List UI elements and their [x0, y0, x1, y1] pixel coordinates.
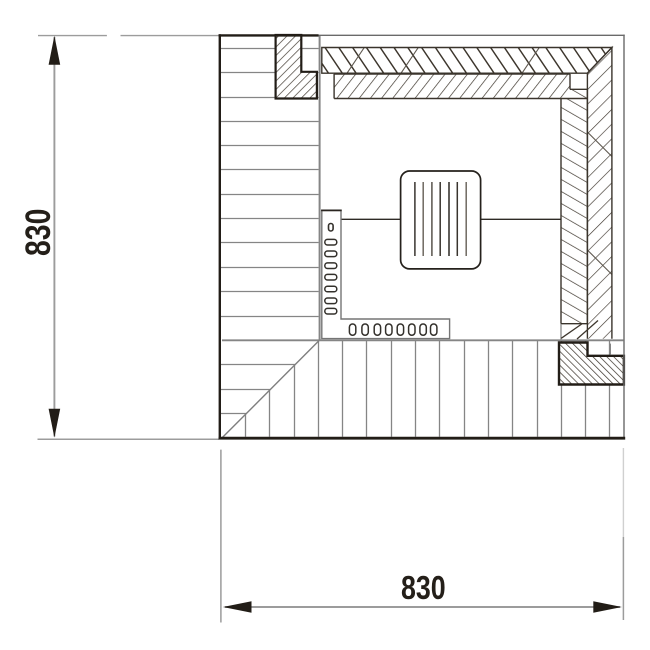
svg-text:830: 830 — [18, 209, 58, 256]
svg-text:830: 830 — [401, 570, 446, 606]
